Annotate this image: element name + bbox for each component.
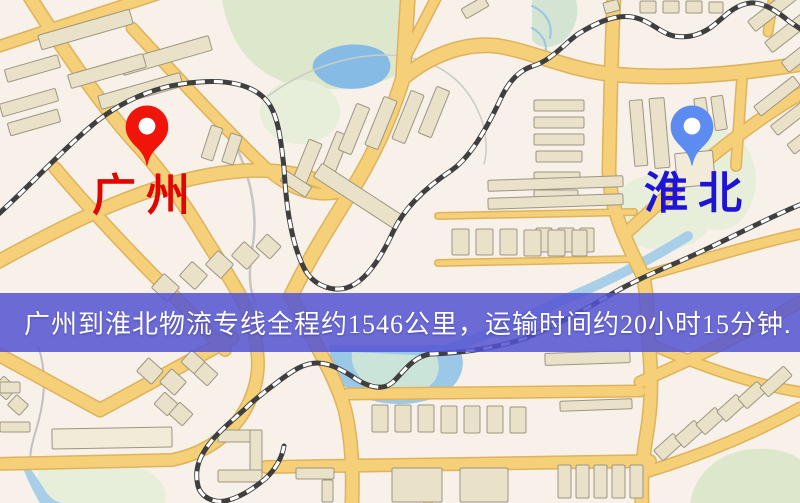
building	[338, 103, 370, 155]
building	[179, 261, 207, 289]
location-pin-icon	[124, 104, 170, 168]
building	[545, 351, 630, 366]
building	[640, 1, 656, 13]
building	[441, 406, 457, 433]
building	[524, 230, 541, 256]
building	[464, 406, 480, 433]
building	[649, 97, 670, 168]
road	[403, 45, 800, 78]
building	[418, 405, 434, 432]
building	[560, 399, 632, 412]
building	[612, 465, 625, 498]
route-info-banner: 广州到淮北物流专线全程约1546公里，运输时间约20小时15分钟.	[0, 293, 800, 352]
building	[594, 465, 607, 498]
building	[418, 86, 450, 138]
building	[630, 465, 643, 498]
building	[4, 55, 60, 83]
road	[266, 461, 650, 467]
building	[576, 465, 589, 498]
map[interactable]: 广州到淮北物流专线全程约1546公里，运输时间约20小时15分钟. 广州 淮北	[0, 0, 800, 503]
building	[488, 176, 623, 192]
route-info-text: 广州到淮北物流专线全程约1546公里，运输时间约20小时15分钟.	[0, 304, 792, 341]
building	[476, 229, 493, 255]
stream	[30, 346, 44, 463]
building	[534, 117, 584, 128]
building	[296, 468, 334, 479]
building	[534, 134, 584, 145]
road	[348, 391, 640, 394]
building	[52, 427, 172, 449]
building	[0, 382, 20, 393]
building	[460, 468, 508, 502]
building	[372, 405, 388, 432]
building	[500, 229, 517, 255]
building	[686, 1, 702, 13]
building	[487, 406, 503, 433]
marker-huaibei[interactable]	[669, 104, 715, 168]
building	[231, 241, 259, 269]
building	[201, 125, 223, 161]
building	[663, 1, 679, 13]
building	[709, 2, 723, 13]
building	[461, 0, 489, 19]
road	[736, 78, 742, 166]
building	[7, 394, 28, 415]
building	[548, 230, 565, 256]
building	[452, 229, 469, 255]
building	[534, 100, 584, 111]
building	[572, 230, 587, 256]
building	[629, 100, 648, 167]
building	[510, 407, 526, 433]
building	[0, 422, 30, 432]
map-canvas[interactable]	[0, 0, 800, 503]
building	[558, 465, 571, 498]
building	[536, 151, 582, 162]
marker-label-guangzhou: 广州	[92, 172, 200, 220]
marker-guangzhou[interactable]	[124, 104, 170, 168]
marker-label-huaibei: 淮北	[644, 170, 752, 218]
building	[392, 468, 442, 502]
building	[322, 480, 333, 502]
building	[488, 194, 623, 210]
building	[395, 405, 411, 432]
location-pin-icon	[669, 104, 715, 168]
building	[218, 470, 262, 482]
